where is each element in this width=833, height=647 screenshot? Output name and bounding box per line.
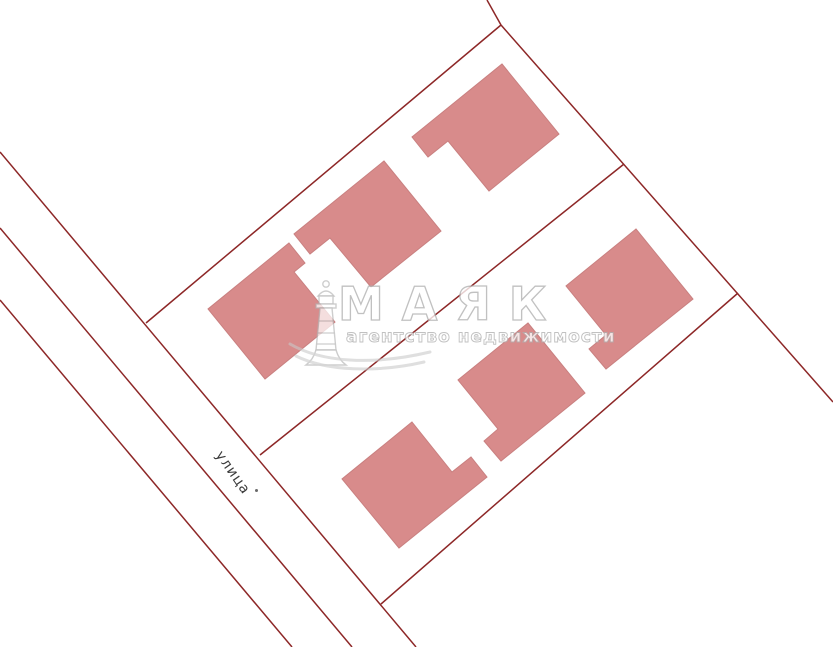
block-east-boundary bbox=[501, 25, 833, 402]
map-canvas bbox=[0, 0, 833, 647]
buildings-group bbox=[208, 64, 693, 548]
north-edge-stub bbox=[487, 0, 501, 25]
boundary-lines-group bbox=[0, 0, 833, 647]
building-3 bbox=[208, 243, 335, 379]
building-5 bbox=[458, 323, 585, 461]
street-label-dot bbox=[255, 489, 258, 492]
building-1 bbox=[412, 64, 559, 191]
building-6 bbox=[342, 422, 487, 548]
block-south-boundary bbox=[381, 293, 738, 604]
site-plan-map: МАЯК агентство недвижимости улица bbox=[0, 0, 833, 647]
block-north-boundary bbox=[146, 25, 501, 323]
